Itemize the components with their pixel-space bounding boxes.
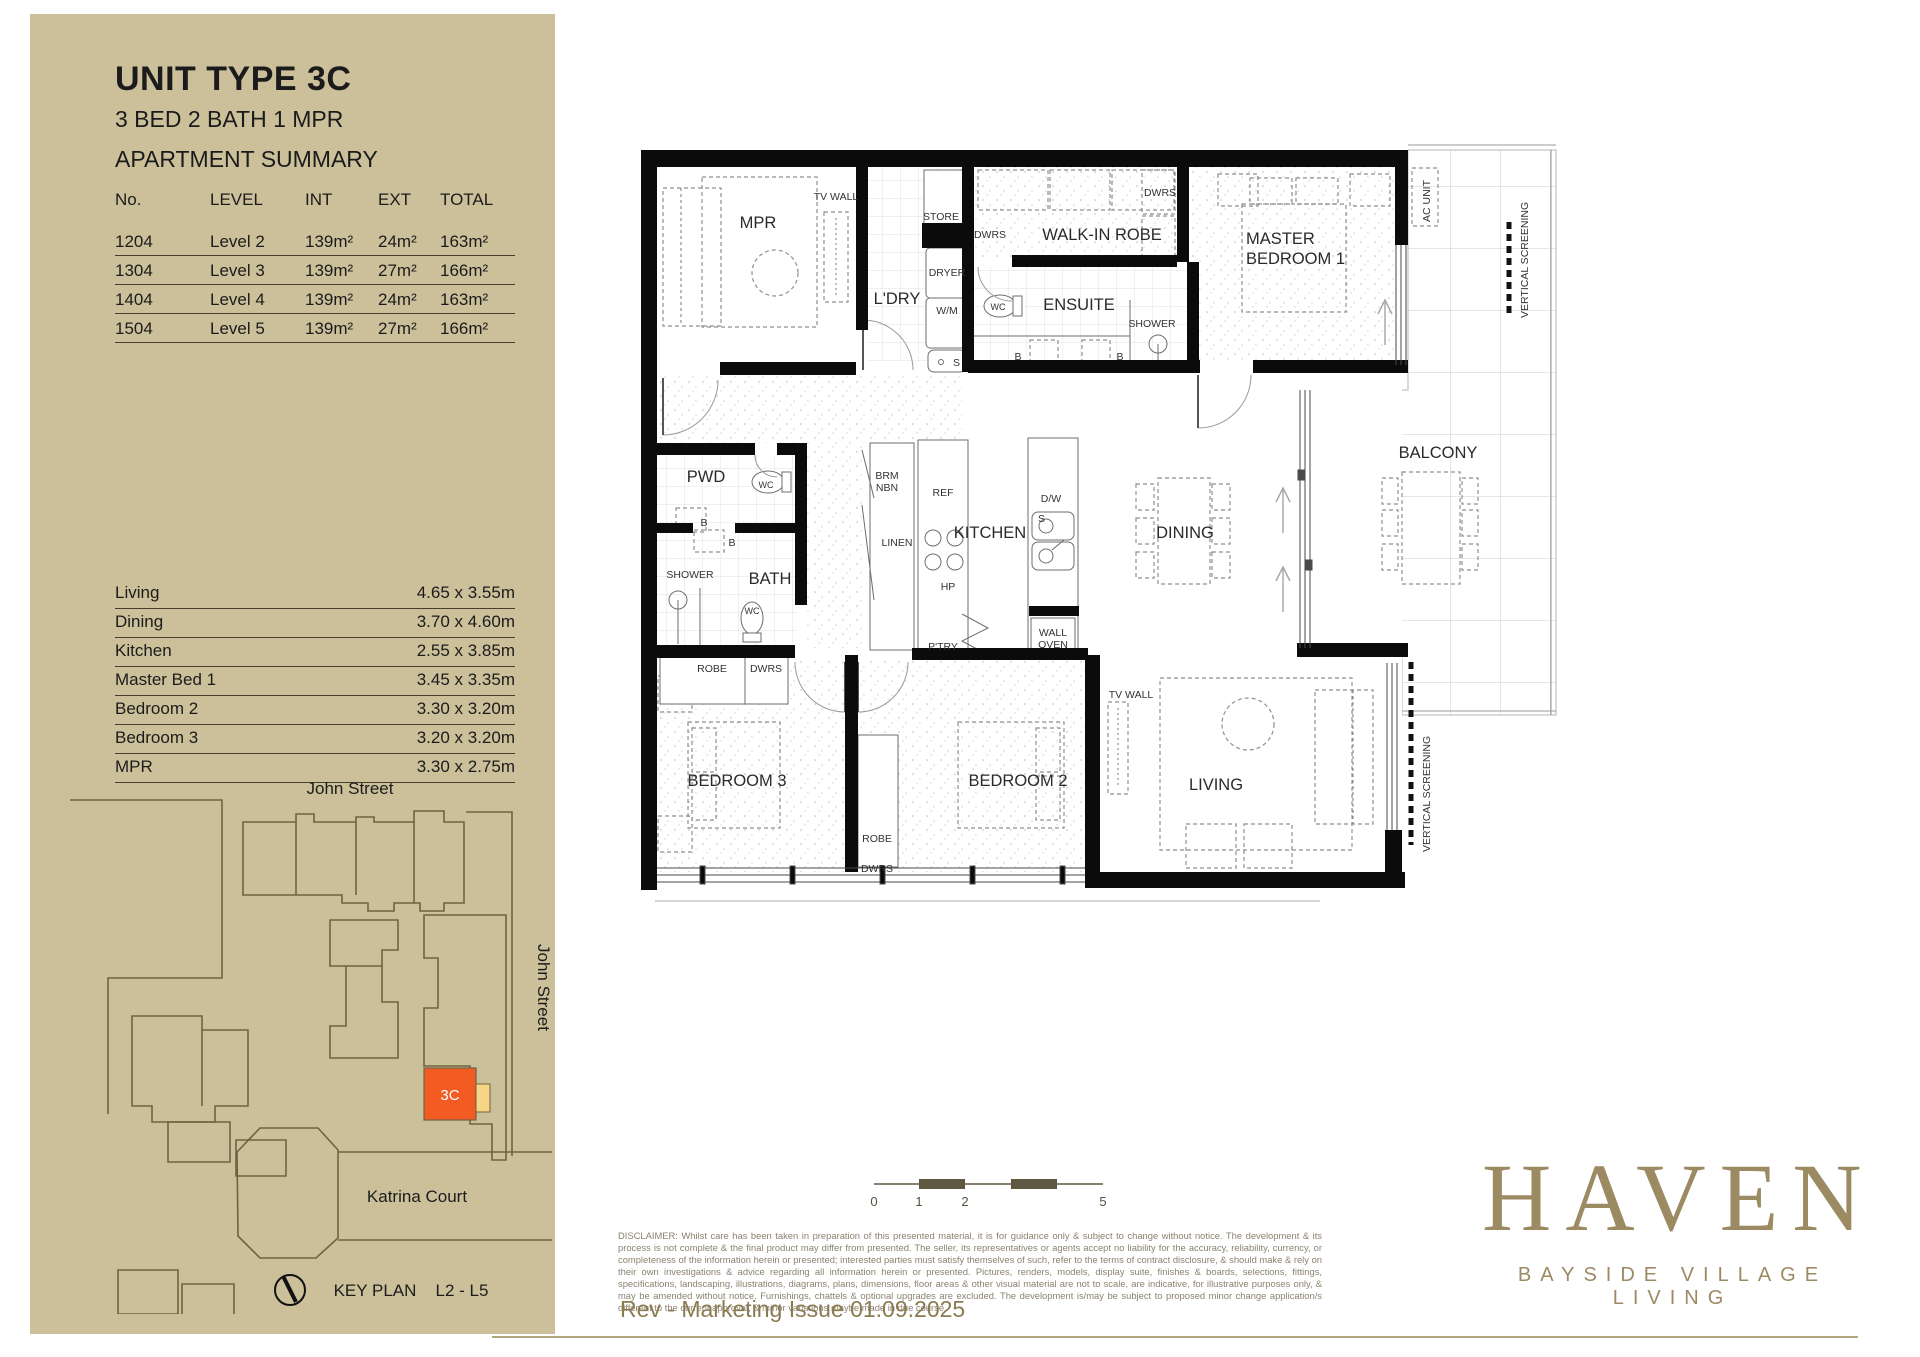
table-row: 1404 Level 4 139m² 24m² 163m² (115, 286, 515, 314)
balcony-label: BALCONY (1399, 444, 1478, 462)
dim-row: Dining 3.70 x 4.60m (115, 609, 515, 638)
dim-label: Kitchen (115, 641, 172, 663)
kitchen-label: KITCHEN (954, 524, 1026, 542)
shower-label: SHOWER (666, 569, 714, 581)
dim-value: 3.70 x 4.60m (417, 612, 515, 634)
dim-row: Living 4.65 x 3.55m (115, 580, 515, 609)
summary-table-header: No. LEVEL INT EXT TOTAL (115, 190, 515, 210)
room-dimension-list: Living 4.65 x 3.55m Dining 3.70 x 4.60m … (115, 580, 515, 783)
dim-label: Dining (115, 612, 163, 634)
mpr-label: MPR (740, 214, 777, 232)
key-plan-levels: L2 - L5 (436, 1281, 489, 1300)
col-int: INT (305, 190, 378, 210)
scale-tick: 5 (1099, 1194, 1106, 1209)
dim-value: 3.30 x 3.20m (417, 699, 515, 721)
hp-label: HP (941, 581, 956, 593)
col-level: LEVEL (210, 190, 305, 210)
floor-plan: MPR TV WALL L'DRY STORE DWRS DRYER W/M S… (600, 130, 1610, 930)
unit-config: 3 BED 2 BATH 1 MPR (115, 106, 343, 133)
dim-row: Bedroom 3 3.20 x 3.20m (115, 725, 515, 754)
cell-total: 166m² (440, 261, 515, 281)
site-outlines (70, 800, 552, 1314)
cell-total: 163m² (440, 232, 515, 252)
floorplan-page: UNIT TYPE 3C 3 BED 2 BATH 1 MPR APARTMEN… (0, 0, 1920, 1357)
table-row: 1204 Level 2 139m² 24m² 163m² (115, 228, 515, 256)
wc-label: WC (745, 606, 760, 616)
cell-total: 163m² (440, 290, 515, 310)
cell-level: Level 3 (210, 261, 305, 281)
wall-oven-label: WALL (1039, 627, 1067, 639)
dim-label: Bedroom 2 (115, 699, 198, 721)
robe-label: ROBE (862, 833, 892, 845)
shower-label: SHOWER (1128, 318, 1176, 330)
dryer-label: DRYER (929, 267, 966, 279)
col-ext: EXT (378, 190, 440, 210)
scale-tick: 1 (915, 1194, 922, 1209)
master-bedroom-label2: BEDROOM 1 (1246, 250, 1345, 268)
court-label: Katrina Court (367, 1187, 467, 1206)
basin-label: B (728, 537, 735, 549)
sidebar-panel: UNIT TYPE 3C 3 BED 2 BATH 1 MPR APARTMEN… (30, 14, 555, 1334)
dim-label: Master Bed 1 (115, 670, 216, 692)
wc-label: WC (991, 302, 1006, 312)
dwrs-label: DWRS (750, 663, 782, 675)
cell-ext: 27m² (378, 319, 440, 339)
wm-label: W/M (936, 305, 958, 317)
brm-nbn-label2: NBN (876, 482, 898, 494)
col-total: TOTAL (440, 190, 515, 210)
dim-value: 4.65 x 3.55m (417, 583, 515, 605)
dwrs-label: DWRS (974, 229, 1006, 241)
cell-ext: 24m² (378, 290, 440, 310)
dim-value: 3.45 x 3.35m (417, 670, 515, 692)
ensuite-label: ENSUITE (1043, 296, 1115, 314)
wall-oven-label2: OVEN (1038, 639, 1068, 651)
ac-unit-label: AC UNIT (1421, 179, 1433, 222)
cell-ext: 27m² (378, 261, 440, 281)
table-row: 1504 Level 5 139m² 27m² 166m² (115, 315, 515, 343)
table-row: 1304 Level 3 139m² 27m² 166m² (115, 257, 515, 285)
master-bedroom-label: MASTER (1246, 230, 1315, 248)
cell-no: 1204 (115, 232, 210, 252)
living-label: LIVING (1189, 776, 1243, 794)
cell-level: Level 4 (210, 290, 305, 310)
dwrs-label: DWRS (1144, 187, 1176, 199)
bedroom2-label: BEDROOM 2 (968, 772, 1067, 790)
apartment-summary-table: No. LEVEL INT EXT TOTAL 1204 Level 2 139… (115, 190, 515, 344)
cell-level: Level 5 (210, 319, 305, 339)
dim-row: Kitchen 2.55 x 3.85m (115, 638, 515, 667)
brm-nbn-label: BRM (875, 470, 898, 482)
cell-no: 1304 (115, 261, 210, 281)
unit-3c-label: 3C (440, 1087, 459, 1104)
footer-divider (492, 1336, 1858, 1338)
vertical-screening-label: VERTICAL SCREENING (1421, 736, 1433, 852)
cell-int: 139m² (305, 261, 378, 281)
basin-label: B (1014, 351, 1021, 363)
cell-level: Level 2 (210, 232, 305, 252)
basin-label: B (1116, 351, 1123, 363)
wc-label: WC (759, 480, 774, 490)
scale-tick: 0 (870, 1194, 877, 1209)
linen-label: LINEN (882, 537, 913, 549)
compass-icon (275, 1275, 305, 1305)
logo-tagline: BAYSIDE VILLAGE LIVING (1477, 1264, 1868, 1310)
street-label-right: John Street (534, 944, 553, 1031)
tv-wall-label: TV WALL (1109, 689, 1154, 701)
dim-value: 3.20 x 3.20m (417, 728, 515, 750)
pwd-label: PWD (687, 468, 726, 486)
unit-type-title: UNIT TYPE 3C (115, 60, 351, 99)
key-plan-label: KEY PLAN (334, 1281, 417, 1300)
walk-in-robe-label: WALK-IN ROBE (1042, 226, 1162, 244)
dw-label: D/W (1041, 493, 1062, 505)
scale-tick: 2 (961, 1194, 968, 1209)
scale-bar: 0 1 2 5 (865, 1170, 1115, 1217)
brand-logo: HAVEN BAYSIDE VILLAGE LIVING (1468, 1148, 1868, 1310)
col-no: No. (115, 190, 210, 210)
store-label: STORE (923, 211, 959, 223)
street-label-top: John Street (307, 779, 394, 798)
dim-label: Bedroom 3 (115, 728, 198, 750)
revision-note: Rev - Marketing Issue 01.09.2025 (620, 1296, 965, 1323)
cell-ext: 24m² (378, 232, 440, 252)
cell-int: 139m² (305, 319, 378, 339)
pantry-label: P'TRY (928, 641, 958, 653)
dining-label: DINING (1156, 524, 1214, 542)
robe-label: ROBE (697, 663, 727, 675)
sink-label: S (953, 357, 960, 369)
key-plan-map: 3C John Street John Street Katrina Court… (70, 766, 560, 1314)
dwrs-label: DWRS (861, 863, 893, 875)
ldry-label: L'DRY (874, 290, 921, 308)
cell-no: 1404 (115, 290, 210, 310)
basin-label: B (700, 517, 707, 529)
dim-value: 2.55 x 3.85m (417, 641, 515, 663)
cell-int: 139m² (305, 290, 378, 310)
cell-int: 139m² (305, 232, 378, 252)
tv-wall-label: TV WALL (814, 191, 859, 203)
bedroom3-label: BEDROOM 3 (687, 772, 786, 790)
dim-row: Master Bed 1 3.45 x 3.35m (115, 667, 515, 696)
dim-row: Bedroom 2 3.30 x 3.20m (115, 696, 515, 725)
cell-total: 166m² (440, 319, 515, 339)
vertical-screening-label: VERTICAL SCREENING (1519, 202, 1531, 318)
summary-title: APARTMENT SUMMARY (115, 146, 378, 173)
ref-label: REF (933, 487, 954, 499)
sink-label: S (1038, 513, 1045, 525)
dim-label: Living (115, 583, 159, 605)
unit-3c-balcony (476, 1084, 490, 1112)
bath-label: BATH (749, 570, 792, 588)
logo-wordmark: HAVEN (1482, 1148, 1868, 1248)
cell-no: 1504 (115, 319, 210, 339)
